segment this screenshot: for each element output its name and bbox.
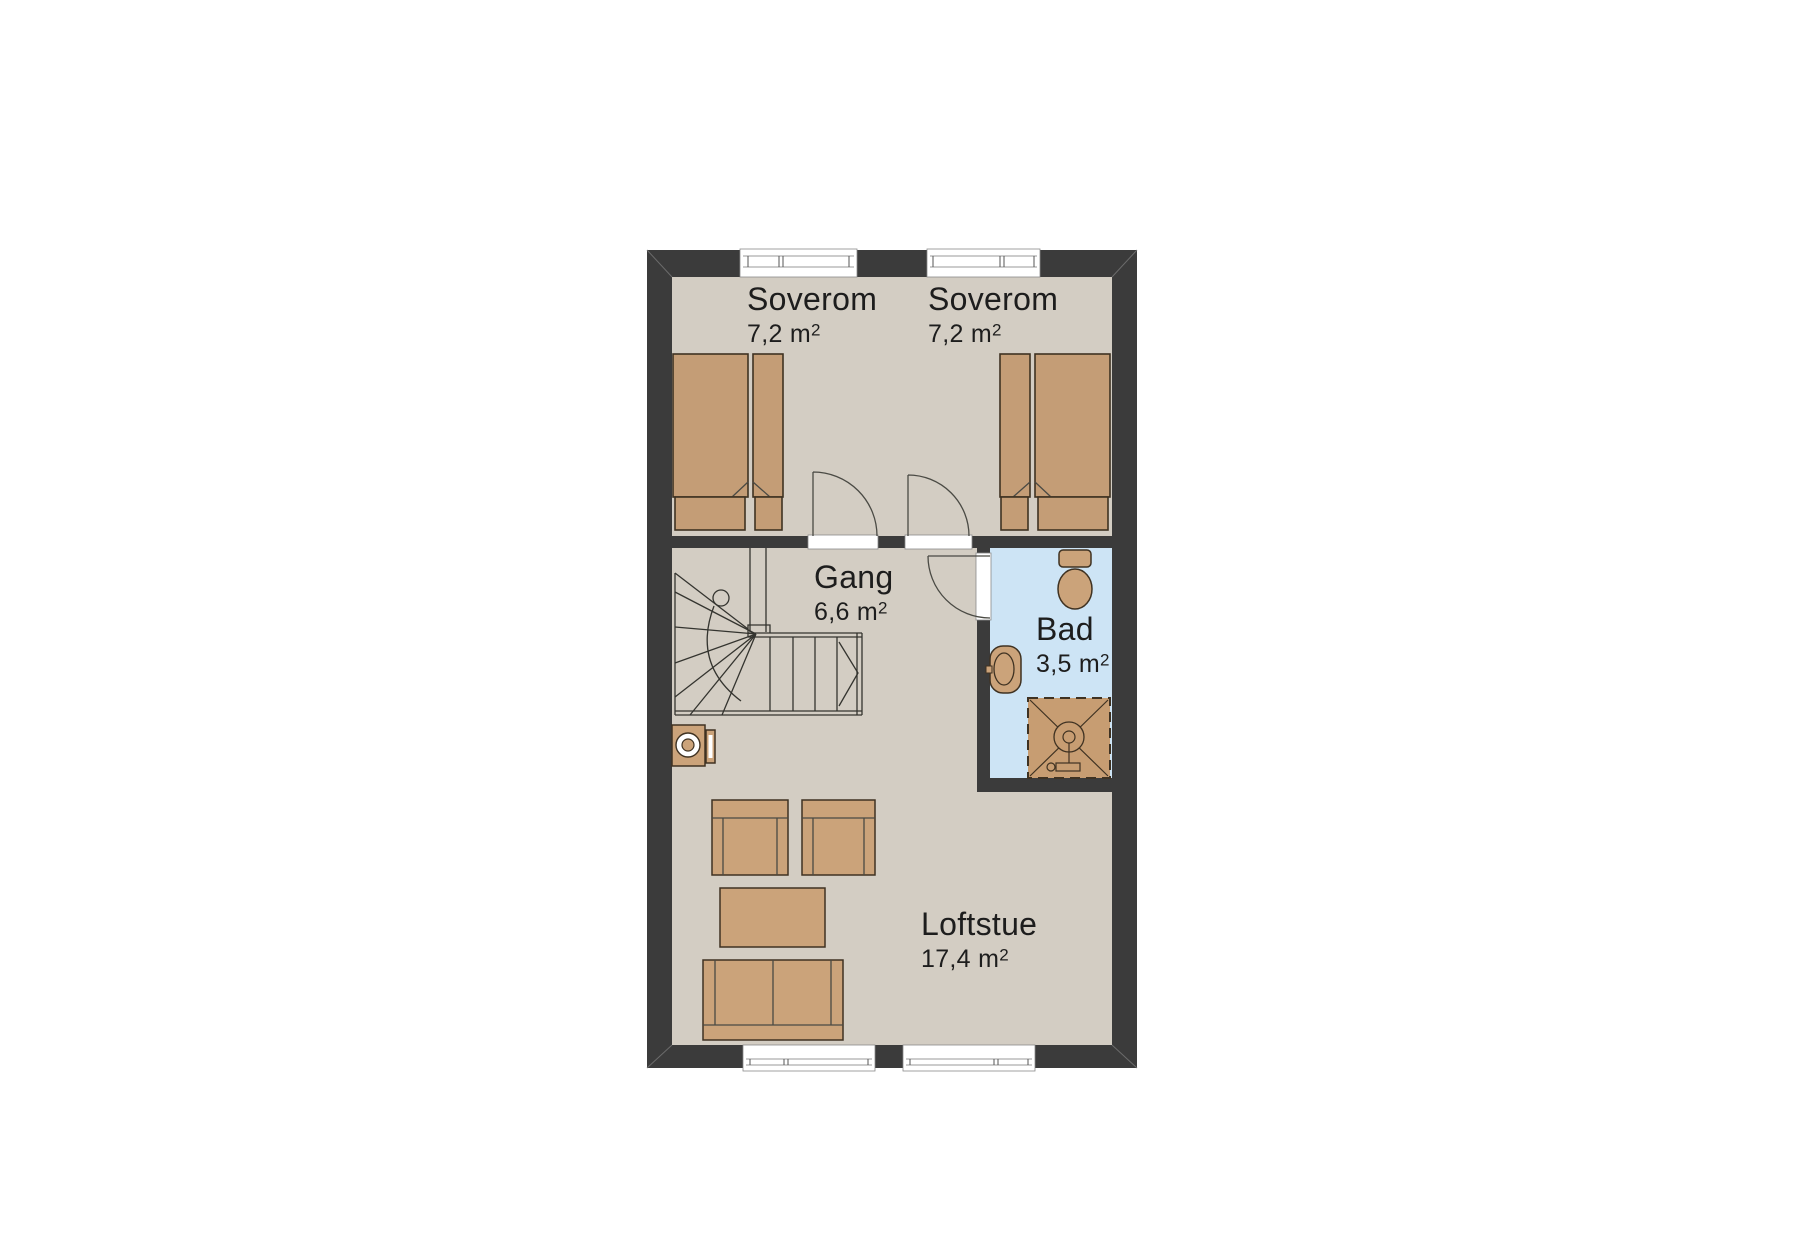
- bottom-wall: [647, 1045, 1137, 1068]
- room-area: 3,5 m2: [1036, 651, 1110, 677]
- sofa: [703, 960, 843, 1040]
- shower-cabin: [1028, 698, 1110, 778]
- window-top-right: [927, 249, 1040, 277]
- room-area: 7,2 m2: [747, 321, 877, 347]
- armchair-left: [712, 800, 788, 875]
- room-label-soverom-2: Soverom 7,2 m2: [928, 283, 1058, 347]
- room-name: Soverom: [747, 283, 877, 317]
- top-wall: [647, 250, 1137, 277]
- divider-wall: [672, 536, 1112, 548]
- floorplan-canvas: Soverom 7,2 m2 Soverom 7,2 m2 Gang 6,6 m…: [0, 0, 1814, 1251]
- coffee-table: [720, 888, 825, 947]
- room-area: 6,6 m2: [814, 599, 893, 625]
- room-label-bad: Bad 3,5 m2: [1036, 613, 1110, 677]
- room-label-soverom-1: Soverom 7,2 m2: [747, 283, 877, 347]
- room-area: 7,2 m2: [928, 321, 1058, 347]
- floorplan-drawing: [0, 0, 1814, 1251]
- room-name: Soverom: [928, 283, 1058, 317]
- room-area: 17,4 m2: [921, 946, 1037, 972]
- left-wall: [647, 250, 672, 1068]
- double-bed-left: [673, 354, 783, 530]
- toilet: [1058, 550, 1092, 609]
- washbasin: [986, 646, 1021, 693]
- bathroom-bottom-wall: [977, 778, 1112, 792]
- room-name: Loftstue: [921, 908, 1037, 942]
- room-label-gang: Gang 6,6 m2: [814, 561, 893, 625]
- armchair-right: [802, 800, 875, 875]
- window-top-left: [740, 249, 857, 277]
- room-name: Gang: [814, 561, 893, 595]
- window-bottom-right: [903, 1045, 1035, 1071]
- right-wall: [1112, 250, 1137, 1068]
- washing-machine: [672, 725, 715, 766]
- room-label-loftstue: Loftstue 17,4 m2: [921, 908, 1037, 972]
- room-name: Bad: [1036, 613, 1110, 647]
- double-bed-right: [1000, 354, 1110, 530]
- window-bottom-left: [743, 1045, 875, 1071]
